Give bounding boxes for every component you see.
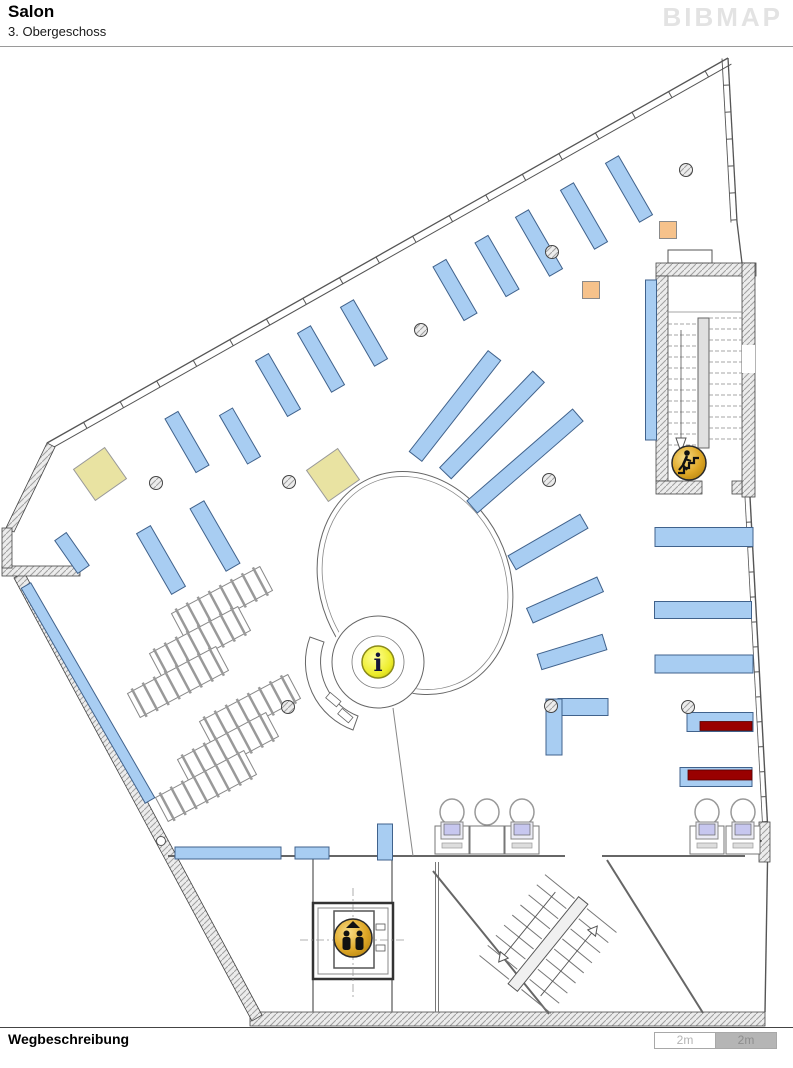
bookshelf [433,259,477,320]
chair [731,799,755,825]
workstation [470,799,504,854]
column [415,324,428,337]
keyboard [733,843,753,848]
bookshelf [508,514,588,569]
column [150,477,163,490]
computer-workstations [435,799,760,854]
chair [440,799,464,825]
keyboard [512,843,532,848]
keyboard [697,843,717,848]
bookshelf [606,156,653,222]
workstation [726,799,760,854]
chair [510,799,534,825]
page-title: Salon [8,2,54,22]
info-icon[interactable]: i [362,646,394,678]
chair [475,799,499,825]
footer: Wegbeschreibung 2m 2m [0,1027,793,1068]
bookshelf [409,351,500,462]
bookshelf [537,634,607,669]
floorplan-map: i [0,0,793,1067]
info-desk [305,616,424,730]
bookshelf [295,847,329,859]
scale-segment-2: 2m [716,1032,777,1049]
floor-subtitle: 3. Obergeschoss [8,24,106,39]
bibmap-logo: BIBMAP [662,2,783,33]
desk [470,826,504,854]
stairwell-bottom [477,872,619,1017]
stairs-icon[interactable] [672,446,706,480]
bookshelf [175,847,281,859]
column [545,700,558,713]
workstation [435,799,469,854]
column [546,246,559,259]
highlighted-shelf [700,722,752,731]
column [680,164,693,177]
bookshelf [378,824,393,860]
bookshelf [190,501,240,571]
column [543,474,556,487]
keyboard [442,843,462,848]
bookshelf [558,699,608,716]
bottom-wall [250,1012,765,1026]
bookshelf [475,235,519,296]
bookshelf [655,602,752,619]
bookshelf [527,577,604,623]
bookshelf [165,411,209,472]
highlighted-shelf [688,770,752,780]
orange-table [583,282,600,299]
orange-table [660,222,677,239]
door-left [157,837,166,846]
bookshelf [137,526,186,595]
scale-bar: 2m 2m [654,1032,777,1049]
bookshelf [256,354,301,417]
bookshelves [21,156,753,860]
bookshelf [341,300,388,366]
bookshelf [655,528,753,547]
bookshelf [646,280,657,440]
chair [695,799,719,825]
column [682,701,695,714]
bookshelf [655,655,753,673]
scale-segment-1: 2m [654,1032,716,1049]
bookshelf [516,210,563,276]
bookshelf [298,326,345,392]
header: Salon 3. Obergeschoss BIBMAP [0,0,793,47]
workstation [690,799,724,854]
elevator-icon[interactable] [334,919,372,957]
column [282,701,295,714]
reading-racks [126,564,301,823]
workstation [505,799,539,854]
route-description-label: Wegbeschreibung [8,1031,129,1047]
column [283,476,296,489]
bookshelf [220,408,261,464]
yellow-table [74,448,127,501]
yellow-table [307,449,360,502]
bookshelf [561,183,608,249]
svg-text:i: i [373,648,382,677]
